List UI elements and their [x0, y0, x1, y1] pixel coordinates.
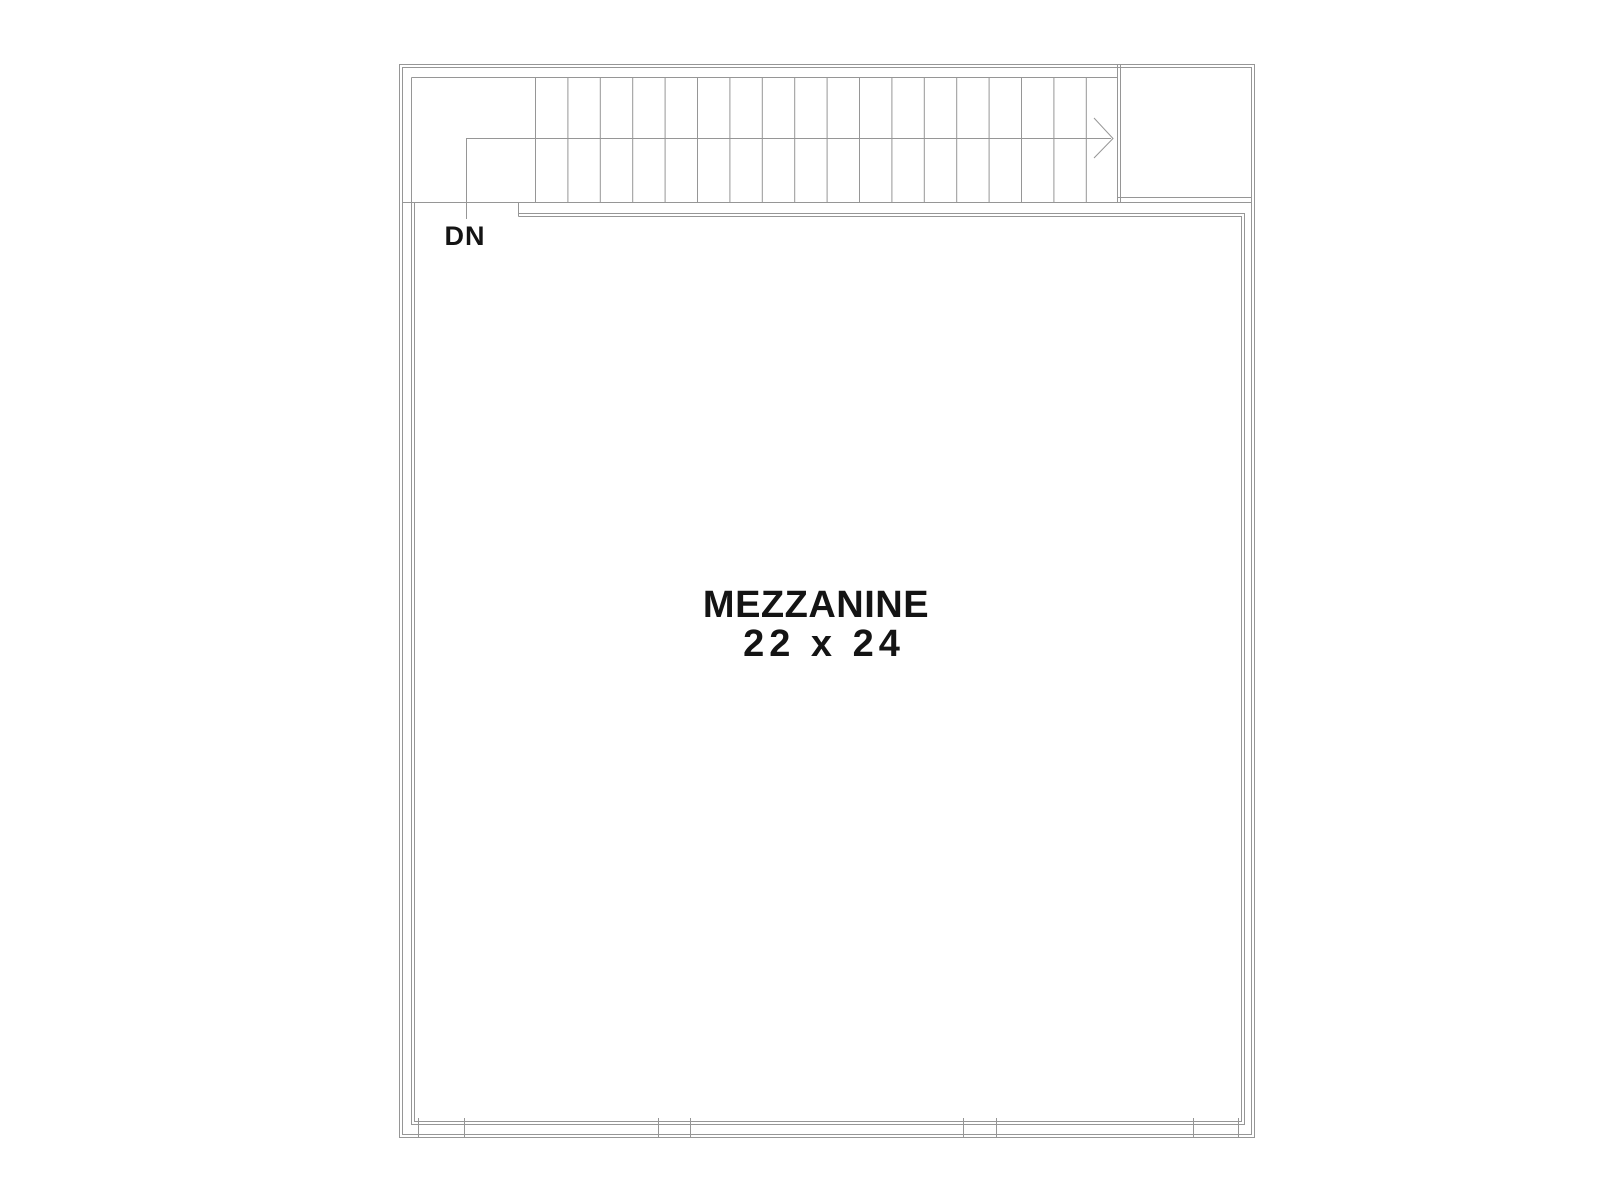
- staircase: [412, 65, 1252, 203]
- floor-plan-page: DN MEZZANINE 22 x 24: [0, 0, 1600, 1200]
- travel-path-line: [467, 139, 1112, 220]
- stair-treads: [536, 78, 1087, 203]
- floor-plan-drawing: DN MEZZANINE 22 x 24: [0, 0, 1600, 1200]
- room-name-label: MEZZANINE: [703, 584, 929, 626]
- stair-direction-label: DN: [445, 221, 486, 251]
- room-size-label: 22 x 24: [743, 623, 905, 665]
- direction-of-travel: [467, 118, 1114, 219]
